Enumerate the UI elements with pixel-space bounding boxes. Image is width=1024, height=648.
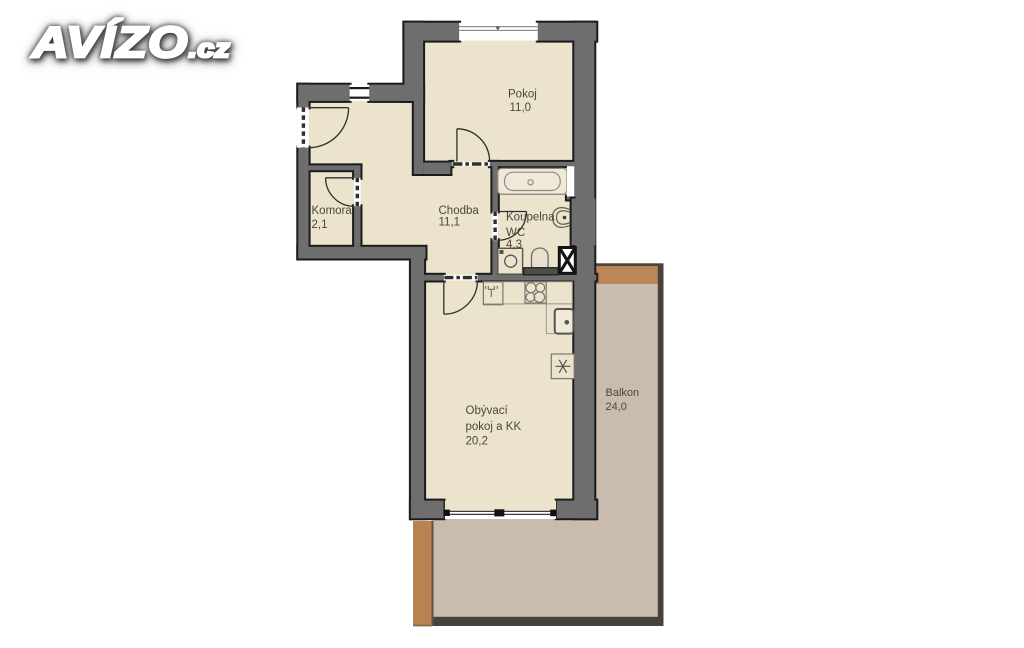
svg-text:Komora: Komora bbox=[312, 205, 353, 217]
svg-text:24,0: 24,0 bbox=[606, 401, 627, 413]
svg-text:2,1: 2,1 bbox=[312, 219, 328, 231]
svg-text:4,3: 4,3 bbox=[506, 239, 522, 251]
svg-text:pokoj a KK: pokoj a KK bbox=[466, 421, 522, 433]
svg-text:20,2: 20,2 bbox=[466, 436, 488, 448]
svg-text:11,1: 11,1 bbox=[439, 217, 461, 229]
svg-text:WC: WC bbox=[506, 227, 525, 239]
svg-text:Pokoj: Pokoj bbox=[508, 89, 537, 101]
svg-text:Balkon: Balkon bbox=[606, 387, 640, 399]
svg-text:Koupelna: Koupelna bbox=[506, 212, 555, 224]
svg-text:11,0: 11,0 bbox=[510, 102, 532, 114]
svg-text:Obývací: Obývací bbox=[466, 405, 509, 417]
svg-text:AVÍZO.cz: AVÍZO.cz bbox=[31, 17, 230, 67]
svg-text:Chodba: Chodba bbox=[439, 205, 480, 217]
